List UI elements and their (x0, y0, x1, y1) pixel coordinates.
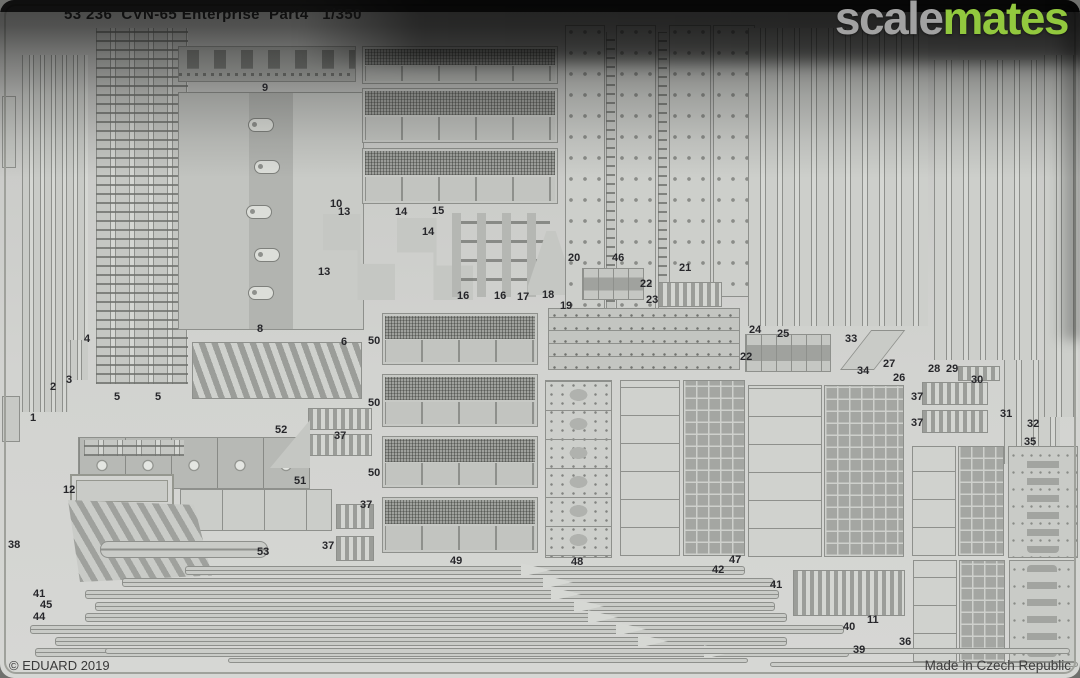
scalemates-watermark: scalemates (835, 0, 1068, 45)
watermark-mates: mates (943, 0, 1068, 44)
copyright-text: © EDUARD 2019 (9, 658, 110, 673)
fret-frame (4, 4, 1076, 674)
watermark-scale: scale (835, 0, 943, 44)
photoetch-sheet-photo: 1234558691013141514131616171819204621222… (0, 0, 1080, 678)
sheet-title: 53 236 CVN-65 Enterprise Part4 1/350 (64, 6, 362, 23)
fret-sheet: 1234558691013141514131616171819204621222… (0, 0, 1080, 678)
made-in-text: Made in Czech Republic (925, 658, 1071, 673)
